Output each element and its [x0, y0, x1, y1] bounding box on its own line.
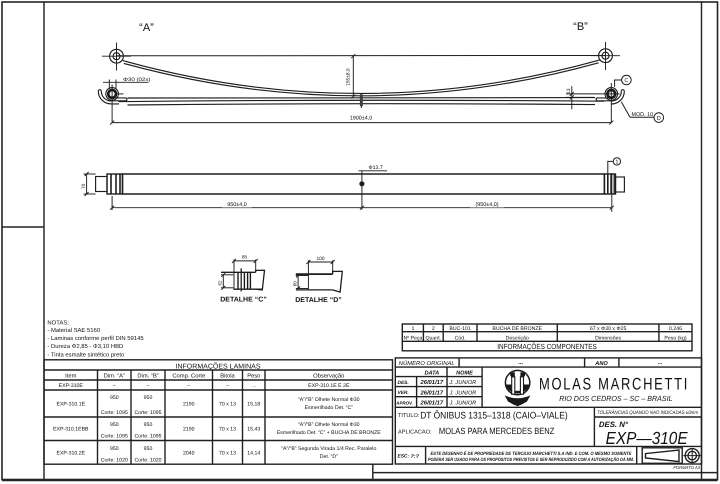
svg-text:14,14: 14,14 — [247, 451, 260, 457]
svg-text:Corte: 1095: Corte: 1095 — [101, 410, 128, 416]
svg-text:950: 950 — [110, 446, 119, 452]
svg-text:TOLERÂNCIAS QUANDO NAO INDICAD: TOLERÂNCIAS QUANDO NAO INDICADAS ±0mm — [597, 409, 698, 416]
svg-text:FORMATO A3: FORMATO A3 — [673, 465, 700, 470]
svg-text:NOTAS:: NOTAS: — [47, 320, 69, 327]
svg-text:EXP-310.2E: EXP-310.2E — [57, 451, 86, 457]
svg-text:Descrição: Descrição — [506, 335, 529, 341]
svg-text:Quant.: Quant. — [426, 335, 442, 341]
svg-text:- Material SAE 5160: - Material SAE 5160 — [47, 327, 100, 334]
svg-text:ESC:: ESC: — [398, 454, 410, 460]
svg-text:INFORMAÇÕES COMPONENTES: INFORMAÇÕES COMPONENTES — [497, 342, 597, 351]
svg-text:EXP-310.1E: EXP-310.1E — [57, 402, 86, 408]
svg-text:Esmerilhado Det. “C” + BUCHA D: Esmerilhado Det. “C” + BUCHA DE BRONZE — [277, 430, 381, 436]
svg-text:- Tinta esmalte sintético pret: - Tinta esmalte sintético preto — [47, 352, 125, 359]
svg-text:Cód.: Cód. — [455, 335, 466, 341]
svg-text:- Laminas conforme perfil DIN: - Laminas conforme perfil DIN 59145 — [47, 335, 144, 342]
svg-text:EXP—310E: EXP—310E — [606, 428, 688, 448]
svg-text:VER.: VER. — [398, 390, 409, 396]
svg-text:MOD. 10: MOD. 10 — [632, 112, 654, 118]
svg-text:950±4,0: 950±4,0 — [227, 202, 246, 208]
svg-text:Bitola: Bitola — [220, 373, 235, 380]
svg-text:EXP-310.1EBB: EXP-310.1EBB — [53, 427, 89, 433]
svg-text:Esmerilhado Det. “C”: Esmerilhado Det. “C” — [305, 405, 354, 411]
svg-text:“A”: “A” — [139, 22, 154, 34]
svg-text:...: ... — [657, 360, 662, 366]
svg-text:(950±4,0): (950±4,0) — [475, 202, 498, 208]
svg-text:Corte: 1095: Corte: 1095 — [101, 434, 128, 440]
svg-text:–: – — [187, 383, 190, 389]
svg-text:MOLAS PARA MERCEDES BENZ: MOLAS PARA MERCEDES BENZ — [439, 426, 555, 436]
svg-text:Peso: Peso — [247, 374, 260, 380]
svg-text:26/01/17: 26/01/17 — [420, 379, 444, 386]
svg-text:–: – — [226, 383, 229, 389]
svg-text:2190: 2190 — [183, 402, 195, 408]
svg-text:- Dureza Φ2,85 - Φ3,10 HBD: - Dureza Φ2,85 - Φ3,10 HBD — [47, 343, 123, 350]
svg-text:Φ13.7: Φ13.7 — [369, 165, 383, 171]
svg-text:ANO: ANO — [594, 361, 608, 367]
svg-text:J. JUNIOR: J. JUNIOR — [449, 401, 477, 407]
svg-text:2040: 2040 — [183, 451, 195, 457]
svg-text:NOME: NOME — [456, 371, 473, 377]
svg-text:Peso (kg): Peso (kg) — [664, 335, 686, 341]
svg-text:DATA: DATA — [424, 371, 439, 377]
svg-text:15,43: 15,43 — [247, 427, 260, 433]
svg-text:DETALHE “C”: DETALHE “C” — [220, 297, 267, 304]
svg-text:–: – — [113, 383, 116, 389]
svg-text:D: D — [657, 116, 661, 122]
svg-text:70: 70 — [81, 183, 87, 189]
svg-text:1: 1 — [411, 326, 414, 332]
svg-text:2: 2 — [432, 326, 435, 332]
svg-text:950: 950 — [144, 422, 153, 428]
svg-text:62: 62 — [218, 280, 223, 286]
svg-text:67 x Φ30 x Φ25: 67 x Φ30 x Φ25 — [590, 326, 627, 332]
svg-text:“A”/“B” Olhete Normal Φ30: “A”/“B” Olhete Normal Φ30 — [298, 397, 360, 403]
svg-text:950: 950 — [110, 422, 119, 428]
svg-text:1: 1 — [615, 159, 618, 165]
svg-text:“A”/“B” Segunda Virada 1/4 Rec: “A”/“B” Segunda Virada 1/4 Rec. Paralelo — [281, 446, 376, 452]
svg-text:13: 13 — [566, 88, 572, 94]
svg-text:Nº Peça: Nº Peça — [403, 335, 422, 341]
svg-text:PODERÁ SER USADO PARA OS PROPÓ: PODERÁ SER USADO PARA OS PROPÓSITOS PREV… — [428, 456, 634, 462]
svg-text:J. JUNIOR: J. JUNIOR — [449, 390, 477, 396]
svg-text:100: 100 — [316, 256, 324, 262]
svg-text:2190: 2190 — [183, 427, 195, 433]
svg-text:J. JUNIOR: J. JUNIOR — [449, 380, 477, 386]
svg-text:70 x 13: 70 x 13 — [219, 451, 236, 457]
svg-text:BUC-101: BUC-101 — [449, 326, 470, 332]
svg-text:“B”: “B” — [573, 21, 588, 33]
svg-text:...: ... — [518, 360, 523, 366]
svg-text:60: 60 — [292, 281, 297, 287]
svg-text:APROV.: APROV. — [395, 400, 413, 405]
svg-text:...: ... — [252, 383, 256, 389]
svg-text:Item: Item — [65, 374, 76, 380]
svg-text:26/01/17: 26/01/17 — [420, 400, 444, 407]
svg-text:APLICACAO:: APLICACAO: — [398, 430, 432, 436]
svg-text:Corte: 1020: Corte: 1020 — [134, 458, 161, 464]
svg-text:Det. “D”: Det. “D” — [320, 454, 338, 460]
svg-text:155±8,0: 155±8,0 — [346, 68, 352, 86]
svg-text:26/01/17: 26/01/17 — [420, 389, 444, 396]
svg-text:Dim. “B”: Dim. “B” — [137, 373, 158, 380]
svg-text:Dim. “A”: Dim. “A” — [104, 373, 125, 380]
svg-text:EXP-310.1E E 2E: EXP-310.1E E 2E — [308, 383, 350, 389]
svg-text:Φ30 (02x): Φ30 (02x) — [123, 77, 151, 83]
svg-text:?:?: ?:? — [411, 454, 420, 460]
svg-text:DETALHE “D”: DETALHE “D” — [295, 297, 342, 304]
svg-text:15,18: 15,18 — [247, 402, 260, 408]
svg-text:–: – — [147, 383, 150, 389]
svg-text:C: C — [624, 78, 628, 84]
svg-text:950: 950 — [144, 395, 153, 401]
svg-text:Corte: 1095: Corte: 1095 — [134, 434, 161, 440]
svg-text:MOLAS MARCHETTI: MOLAS MARCHETTI — [539, 375, 689, 394]
svg-text:0,246: 0,246 — [669, 326, 682, 332]
svg-text:RIO DOS CEDROS – SC – BRASIL: RIO DOS CEDROS – SC – BRASIL — [559, 394, 672, 403]
svg-text:70 x 13: 70 x 13 — [219, 402, 236, 408]
svg-text:DT ÔNIBUS 1315–1318 (CAIO–VIAL: DT ÔNIBUS 1315–1318 (CAIO–VIALE) — [420, 409, 568, 421]
svg-text:ESTE DESENHO É DE PROPRIEDADE: ESTE DESENHO É DE PROPRIEDADE DE TERCILI… — [431, 450, 633, 456]
svg-text:1900±4,0: 1900±4,0 — [350, 116, 372, 122]
svg-text:BUCHA DE BRONZE: BUCHA DE BRONZE — [492, 326, 542, 332]
svg-text:NÚMERO ORIGINAL: NÚMERO ORIGINAL — [399, 360, 455, 367]
svg-text:TITULO:: TITULO: — [398, 413, 420, 419]
svg-text:950: 950 — [110, 395, 119, 401]
svg-text:Dimensões: Dimensões — [595, 335, 621, 341]
svg-text:Comp. Corte: Comp. Corte — [172, 373, 205, 380]
svg-text:85: 85 — [242, 255, 248, 261]
svg-text:INFORMAÇÕES LAMINAS: INFORMAÇÕES LAMINAS — [176, 362, 261, 371]
svg-text:70 x 13: 70 x 13 — [219, 427, 236, 433]
svg-text:EXP-310E: EXP-310E — [59, 383, 84, 389]
svg-text:Corte: 1020: Corte: 1020 — [101, 458, 128, 464]
svg-text:DES.: DES. — [398, 380, 409, 386]
svg-text:Observação: Observação — [313, 373, 344, 380]
svg-text:950: 950 — [144, 446, 153, 452]
svg-text:“A”/“B” Olhete Normal Φ30: “A”/“B” Olhete Normal Φ30 — [298, 422, 360, 428]
svg-text:Corte: 1095: Corte: 1095 — [134, 410, 161, 416]
